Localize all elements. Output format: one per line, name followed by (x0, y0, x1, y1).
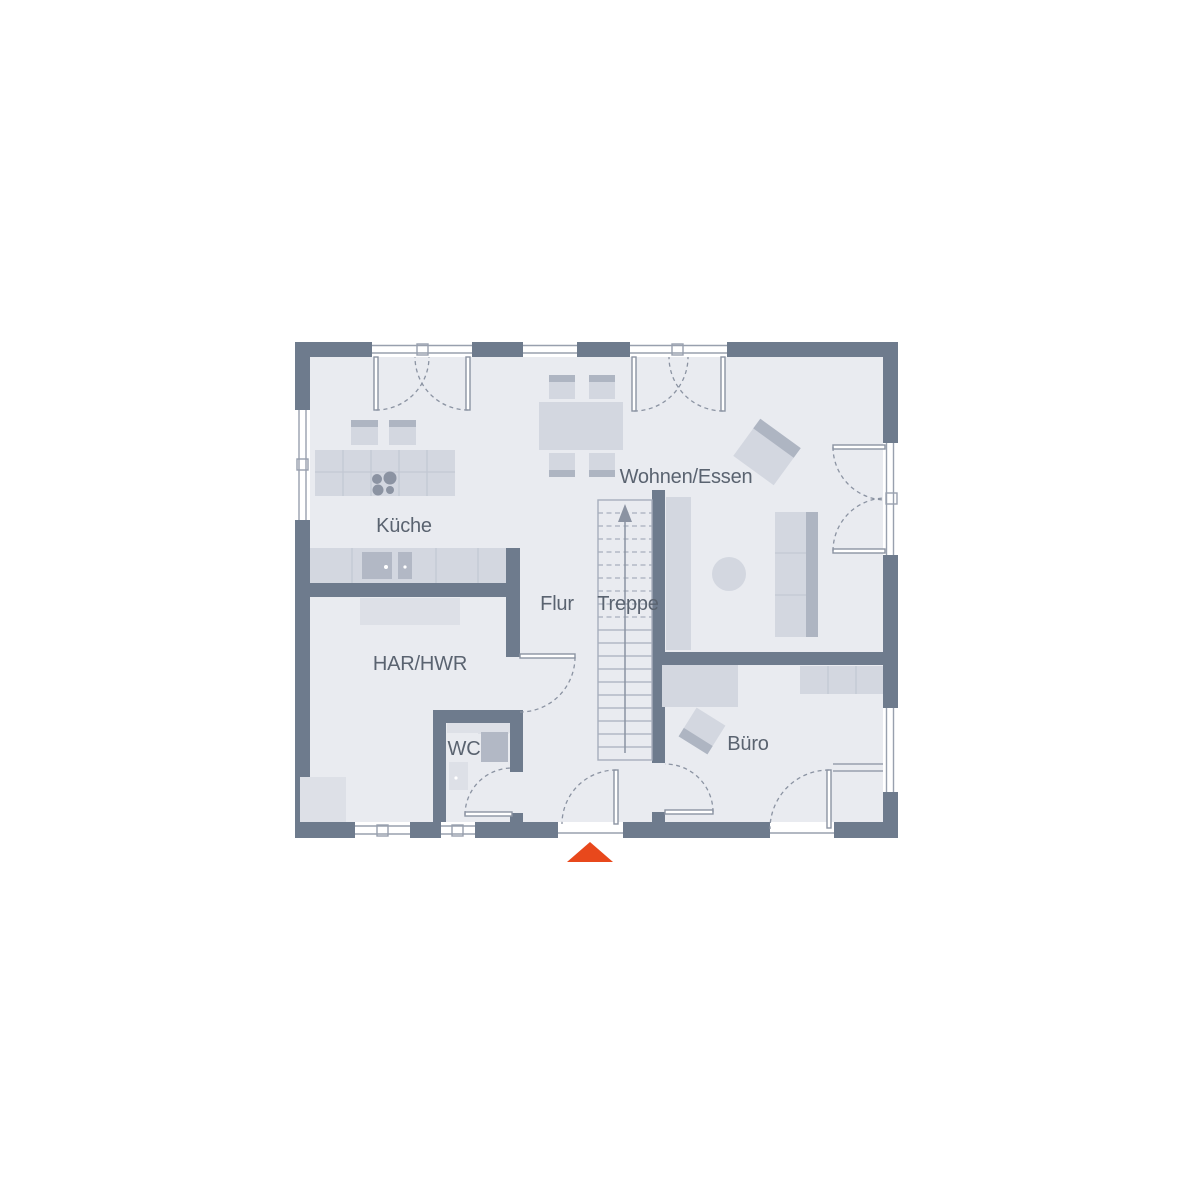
door-leaf (465, 812, 512, 816)
wall-wc-top (433, 710, 523, 723)
dining-chair (549, 453, 575, 477)
wall-wohnen-buero (652, 652, 883, 665)
sideboard (666, 497, 691, 650)
room-label-wc: WC (448, 738, 481, 760)
wall-kueche-har (295, 583, 520, 597)
room-label-flur: Flur (540, 593, 574, 615)
room-label-har-hwr: HAR/HWR (373, 653, 467, 675)
room-label-buero: Büro (727, 733, 769, 755)
door-leaf (721, 357, 725, 411)
desk (662, 665, 738, 707)
har-shelf (360, 598, 460, 625)
window-bottom-har (355, 822, 410, 838)
door-leaf (374, 357, 378, 410)
coffee-table (712, 557, 746, 591)
floor-plan-svg: Küche Wohnen/Essen Flur Treppe HAR/HWR W… (0, 0, 1200, 1200)
door-leaf (466, 357, 470, 410)
room-label-treppe: Treppe (597, 593, 659, 615)
office-shelf (800, 666, 883, 694)
door-leaf (833, 549, 885, 553)
kitchen-sink (362, 552, 392, 579)
dining-table (539, 402, 623, 450)
door-leaf (827, 770, 831, 828)
dining-chair (589, 375, 615, 399)
wall-stairs (652, 490, 665, 763)
door-leaf (520, 654, 575, 658)
room-label-wohnen-essen: Wohnen/Essen (620, 466, 753, 488)
wall-wc-right (510, 710, 523, 772)
dining-chair (549, 375, 575, 399)
toilet (478, 723, 509, 762)
bar-stool (389, 420, 416, 445)
har-unit (300, 777, 346, 822)
kitchen-island (315, 450, 455, 496)
door-leaf (665, 810, 713, 814)
window-top-center (523, 342, 577, 357)
sofa (775, 512, 818, 637)
door-leaf (614, 770, 618, 824)
window-left-kueche (295, 410, 310, 520)
door-leaf (833, 445, 885, 449)
bar-stool (351, 420, 378, 445)
appliance-dot (403, 565, 406, 568)
dining-chair (589, 453, 615, 477)
wall-wc-left (433, 710, 446, 822)
wash-basin (449, 762, 468, 790)
window-bottom-wc (441, 822, 475, 838)
room-label-kueche: Küche (376, 515, 432, 537)
floor-plan-page: Küche Wohnen/Essen Flur Treppe HAR/HWR W… (0, 0, 1200, 1200)
sink-tap-dot (384, 565, 388, 569)
wall-stairs-stub (652, 812, 665, 822)
wall-har-flur (506, 548, 520, 657)
door-leaf (632, 357, 636, 411)
entrance-marker-triangle (567, 842, 613, 862)
